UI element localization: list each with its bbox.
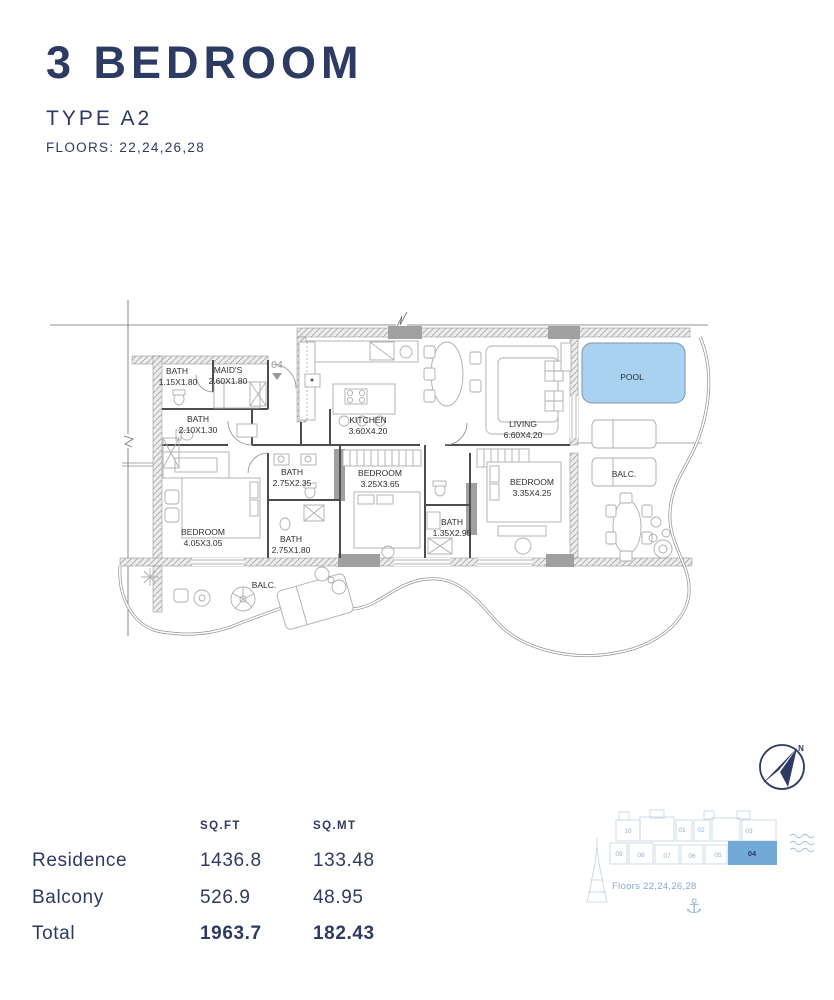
- keyplan-floors-note: Floors 22,24,26,28: [612, 881, 697, 892]
- col-header-sqmt: SQ.MT: [313, 820, 356, 832]
- residence-sqft: 1436.8: [200, 850, 262, 872]
- keyplan-unit: 01: [678, 827, 686, 834]
- balcony-label: BALC.: [252, 580, 277, 590]
- keyplan-unit: 08: [637, 852, 645, 859]
- room-dims: 2.75X2.35: [273, 478, 312, 488]
- balcony-sqmt: 48.95: [313, 887, 364, 909]
- room-label: LIVING: [509, 419, 537, 429]
- north-label: N: [798, 744, 804, 753]
- keyplan: 10 01 02 03 09 08 07 06 05 04 Floors 22,…: [587, 810, 814, 918]
- entrance-arrow-icon: [272, 373, 282, 380]
- room-label: KITCHEN: [349, 415, 386, 425]
- room-label: BEDROOM: [510, 477, 554, 487]
- keyplan-unit: 10: [624, 828, 632, 835]
- row-label-total: Total: [32, 923, 75, 945]
- room-dims: 3.35X4.25: [513, 488, 552, 498]
- waves-icon: [790, 834, 814, 852]
- keyplan-unit: 03: [745, 828, 753, 835]
- total-sqft: 1963.7: [200, 923, 262, 945]
- row-label-residence: Residence: [32, 850, 127, 872]
- room-dims: 1.15X1.80: [159, 377, 198, 387]
- unit-number-marker: 04: [271, 359, 283, 371]
- total-sqmt: 182.43: [313, 923, 375, 945]
- residence-sqmt: 133.48: [313, 850, 375, 872]
- room-dims: 2.10X1.30: [179, 425, 218, 435]
- compass-icon: N: [760, 744, 804, 789]
- room-dims: 4.05X3.05: [184, 538, 223, 548]
- room-dims: 6.60X4.20: [504, 430, 543, 440]
- keyplan-unit: 05: [714, 852, 722, 859]
- tower-icon: [587, 838, 607, 902]
- keyplan-unit: 06: [688, 853, 696, 860]
- floorplan-page: 3 BEDROOM TYPE A2 FLOORS: 22,24,26,28: [0, 0, 834, 1000]
- room-label: BEDROOM: [181, 527, 225, 537]
- room-label: BATH: [281, 467, 303, 477]
- room-label: BATH: [187, 414, 209, 424]
- keyplan-highlighted-unit-label: 04: [748, 849, 757, 858]
- keyplan-unit: 02: [697, 827, 705, 834]
- room-label: MAID'S: [214, 365, 243, 375]
- balcony-label: BALC.: [612, 469, 637, 479]
- room-label: BATH: [166, 366, 188, 376]
- room-dims: 2.75X1.80: [272, 545, 311, 555]
- room-dims: 1.35X2.95: [433, 528, 472, 538]
- room-dims: 2.60X1.80: [209, 376, 248, 386]
- room-dims: 3.25X3.65: [361, 479, 400, 489]
- row-label-balcony: Balcony: [32, 887, 104, 909]
- balcony-sqft: 526.9: [200, 887, 251, 909]
- room-label: BATH: [441, 517, 463, 527]
- anchor-icon: ⚓: [685, 894, 703, 918]
- keyplan-unit: 09: [615, 851, 623, 858]
- col-header-sqft: SQ.FT: [200, 820, 241, 832]
- room-label: BATH: [280, 534, 302, 544]
- room-label: BEDROOM: [358, 468, 402, 478]
- keyplan-unit: 07: [663, 853, 671, 860]
- room-dims: 3.60X4.20: [349, 426, 388, 436]
- pool-label: POOL: [620, 372, 644, 382]
- entrance-marker: 04: [271, 359, 283, 380]
